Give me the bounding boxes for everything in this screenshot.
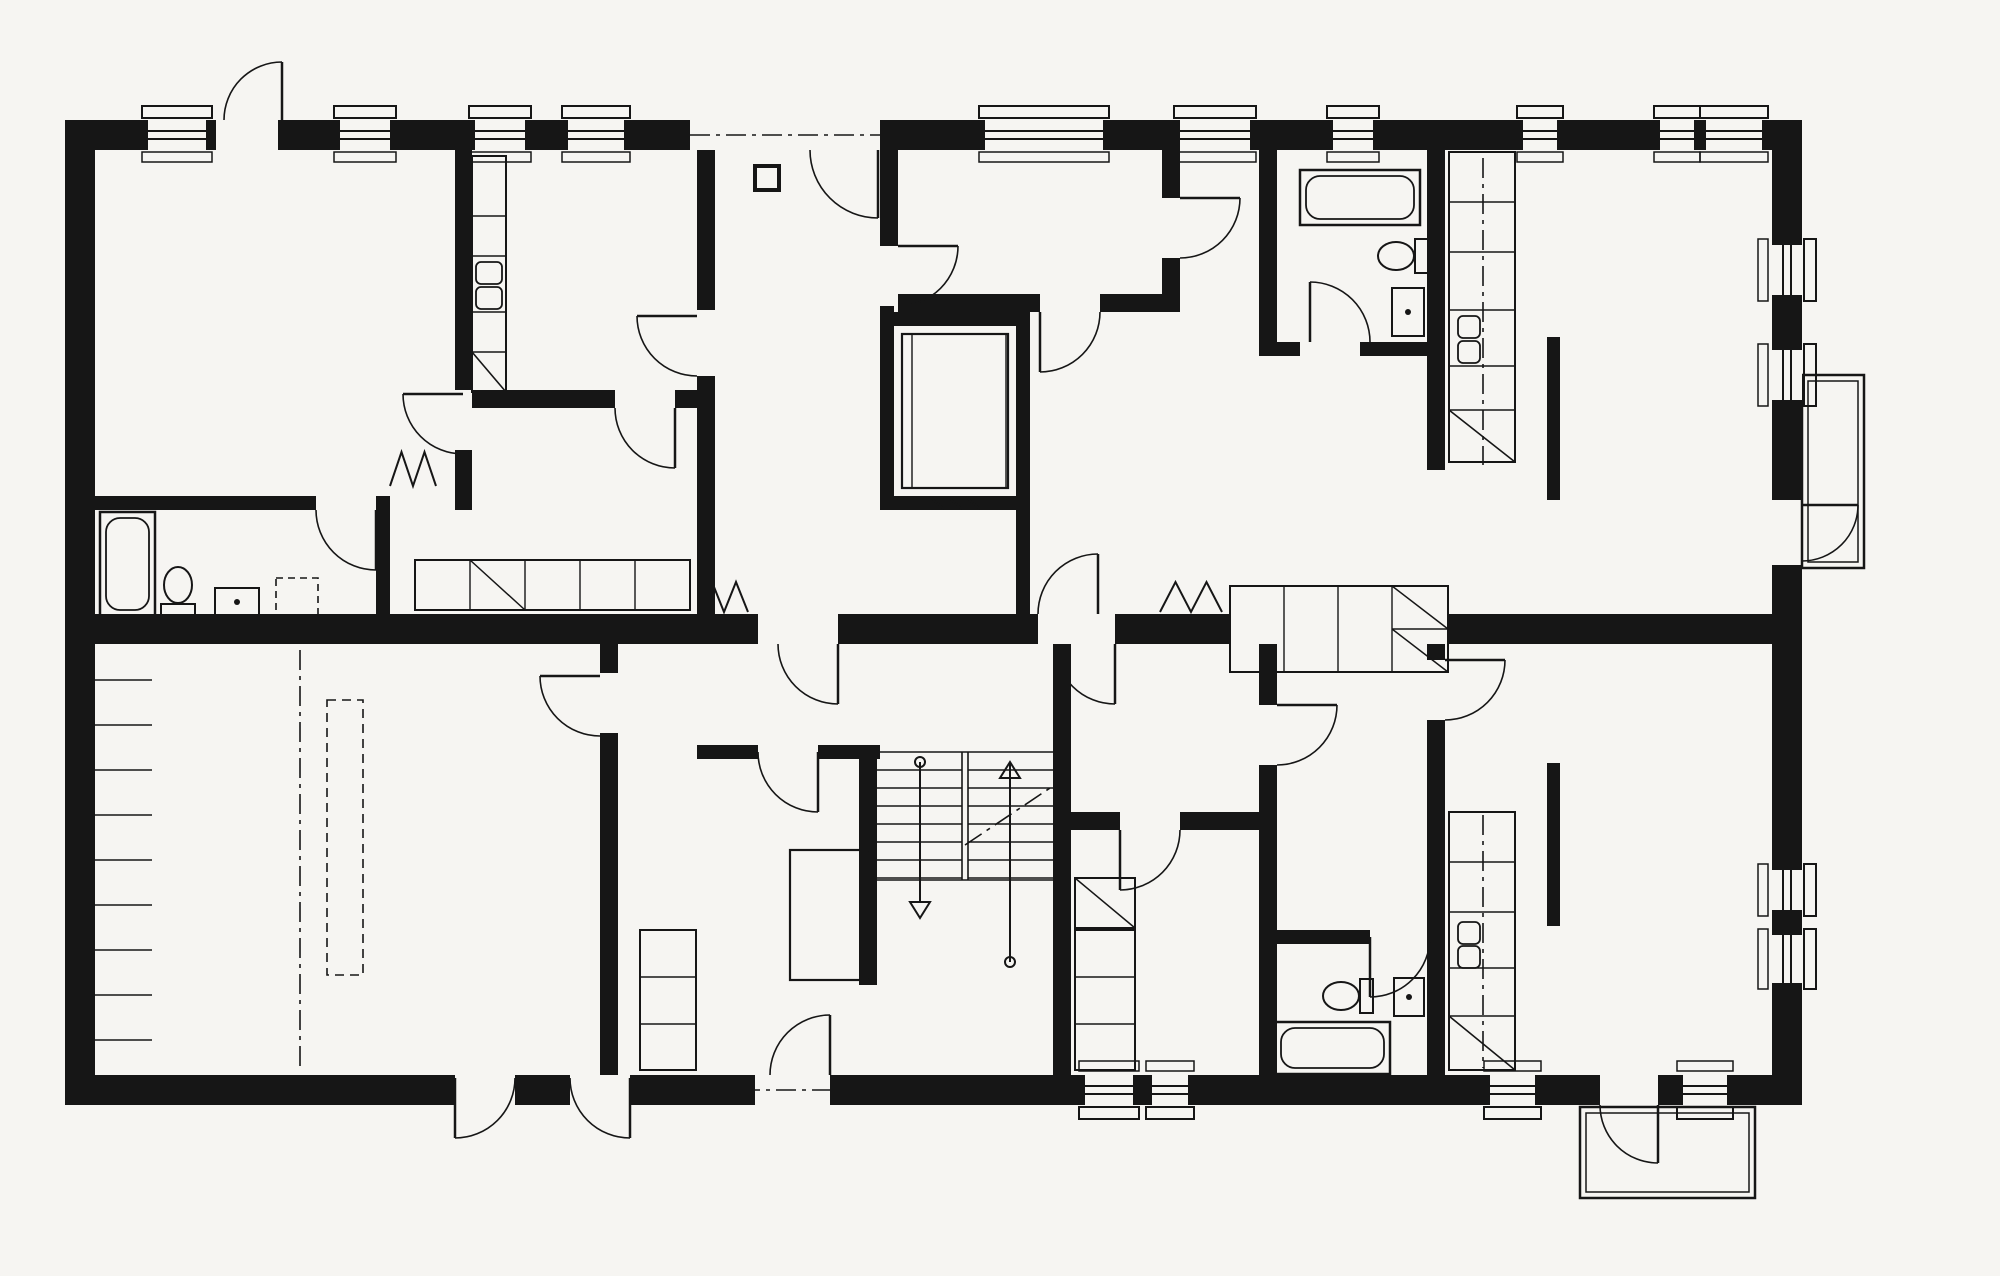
wall bbox=[455, 150, 472, 390]
wall bbox=[880, 306, 894, 510]
window-gap bbox=[1490, 1075, 1535, 1105]
wall bbox=[1259, 644, 1277, 705]
wall bbox=[697, 614, 758, 644]
wall bbox=[675, 390, 697, 408]
window-gap bbox=[1152, 1075, 1188, 1105]
window-gap bbox=[1683, 1075, 1727, 1105]
wall bbox=[830, 1075, 1085, 1105]
floor-plan-page bbox=[0, 0, 2000, 1276]
wall bbox=[1658, 1075, 1683, 1105]
room-divider-bar bbox=[1547, 337, 1560, 500]
wall bbox=[1016, 312, 1030, 510]
wall bbox=[390, 614, 697, 644]
wall bbox=[838, 614, 1038, 644]
wall bbox=[697, 150, 715, 310]
wall bbox=[600, 644, 618, 673]
wall bbox=[697, 745, 758, 759]
wall bbox=[525, 120, 568, 150]
wall bbox=[1162, 150, 1180, 198]
wall bbox=[1053, 745, 1071, 985]
wall bbox=[1427, 150, 1445, 470]
wall bbox=[1100, 294, 1180, 312]
wall bbox=[390, 120, 475, 150]
wall bbox=[1535, 1075, 1600, 1105]
window-gap bbox=[1660, 120, 1694, 150]
wall bbox=[1188, 1075, 1490, 1105]
window-gap bbox=[1180, 120, 1250, 150]
window-gap bbox=[148, 120, 206, 150]
wall bbox=[1133, 1075, 1152, 1105]
wall bbox=[1694, 120, 1706, 150]
window-gap bbox=[1772, 350, 1802, 400]
wall bbox=[95, 496, 316, 510]
wall bbox=[1772, 983, 1802, 1105]
wall bbox=[880, 120, 985, 150]
wall bbox=[65, 120, 95, 1105]
window-gap bbox=[475, 120, 525, 150]
wall bbox=[1053, 985, 1071, 1075]
wall bbox=[600, 733, 618, 1075]
window-gap bbox=[1772, 870, 1802, 910]
wall bbox=[1250, 120, 1333, 150]
wall bbox=[1259, 150, 1277, 356]
wall bbox=[1427, 720, 1445, 1075]
wall bbox=[1557, 120, 1660, 150]
wall bbox=[1360, 342, 1445, 356]
window-gap bbox=[1333, 120, 1373, 150]
window-gap bbox=[1523, 120, 1557, 150]
wall bbox=[1115, 614, 1230, 644]
window-gap bbox=[1772, 935, 1802, 983]
wall bbox=[95, 614, 390, 644]
wall bbox=[455, 450, 472, 510]
sink-drain bbox=[1405, 309, 1411, 315]
wall bbox=[1071, 812, 1120, 830]
wall bbox=[1277, 930, 1370, 944]
wall bbox=[1772, 120, 1802, 245]
window-gap bbox=[1085, 1075, 1133, 1105]
sink-drain bbox=[1406, 994, 1412, 1000]
wall bbox=[1772, 400, 1802, 500]
window-gap bbox=[568, 120, 624, 150]
wall bbox=[1162, 258, 1180, 294]
wall bbox=[697, 376, 715, 614]
wall bbox=[206, 120, 216, 150]
wall bbox=[1259, 342, 1300, 356]
wall bbox=[278, 120, 340, 150]
wall bbox=[1772, 565, 1802, 870]
wall bbox=[65, 1075, 455, 1105]
wall bbox=[376, 496, 390, 614]
wall bbox=[859, 745, 877, 985]
wall bbox=[880, 150, 898, 246]
wall bbox=[1016, 510, 1030, 614]
sink-drain bbox=[234, 599, 240, 605]
wall bbox=[624, 120, 690, 150]
window-gap bbox=[985, 120, 1103, 150]
window-gap bbox=[1706, 120, 1762, 150]
room-divider-bar bbox=[1547, 763, 1560, 926]
wall bbox=[1772, 295, 1802, 350]
wall bbox=[1772, 910, 1802, 935]
wall bbox=[1103, 120, 1180, 150]
wall bbox=[630, 1075, 755, 1105]
wall bbox=[515, 1075, 570, 1105]
window-gap bbox=[1772, 245, 1802, 295]
window-gap bbox=[340, 120, 390, 150]
floor-plan bbox=[0, 0, 2000, 1276]
wall bbox=[1448, 614, 1772, 644]
wall bbox=[880, 312, 1030, 326]
wall bbox=[1373, 120, 1523, 150]
wall bbox=[1053, 644, 1071, 745]
